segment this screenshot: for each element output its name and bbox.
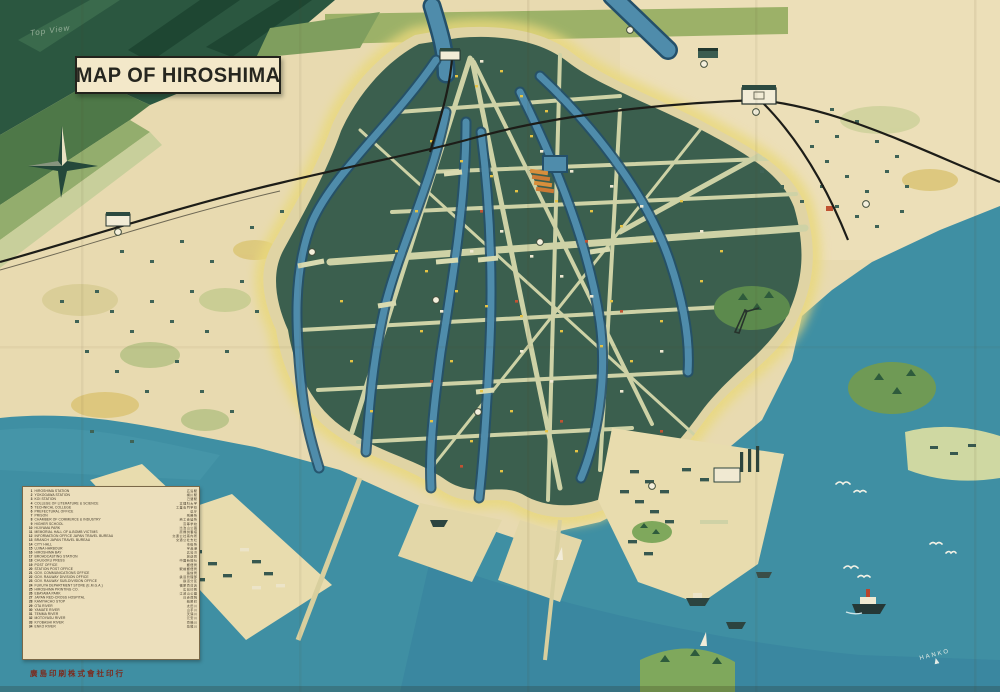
legend-item-name: ENKO RIVER (35, 625, 114, 629)
map-poster: Top View MAP OF HIROSHIMA 1 HIROSHIMA ST… (0, 0, 1000, 692)
legend-list: 1 HIROSHIMA STATION 広島駅 2 YOKOGAWA STATI… (23, 487, 200, 629)
map-title: MAP OF HIROSHIMA (76, 63, 281, 88)
publisher-imprint: 廣島印刷株式會社印行 (30, 668, 125, 679)
koi-station (106, 212, 130, 226)
title-box: MAP OF HIROSHIMA (75, 56, 281, 94)
legend-panel: 1 HIROSHIMA STATION 広島駅 2 YOKOGAWA STATI… (22, 486, 200, 660)
legend-item: 34 ENKO RIVER 猿猴川 (26, 625, 198, 629)
yokogawa-station (440, 48, 460, 60)
east-red-building (826, 206, 833, 211)
rail-depot (698, 48, 718, 58)
legend-item-japanese: 猿猴川 (114, 625, 198, 629)
hiroshima-station (742, 85, 776, 104)
castle-moat (543, 156, 567, 172)
pier-park (632, 521, 672, 543)
legend-item-number: 34 (26, 625, 35, 629)
